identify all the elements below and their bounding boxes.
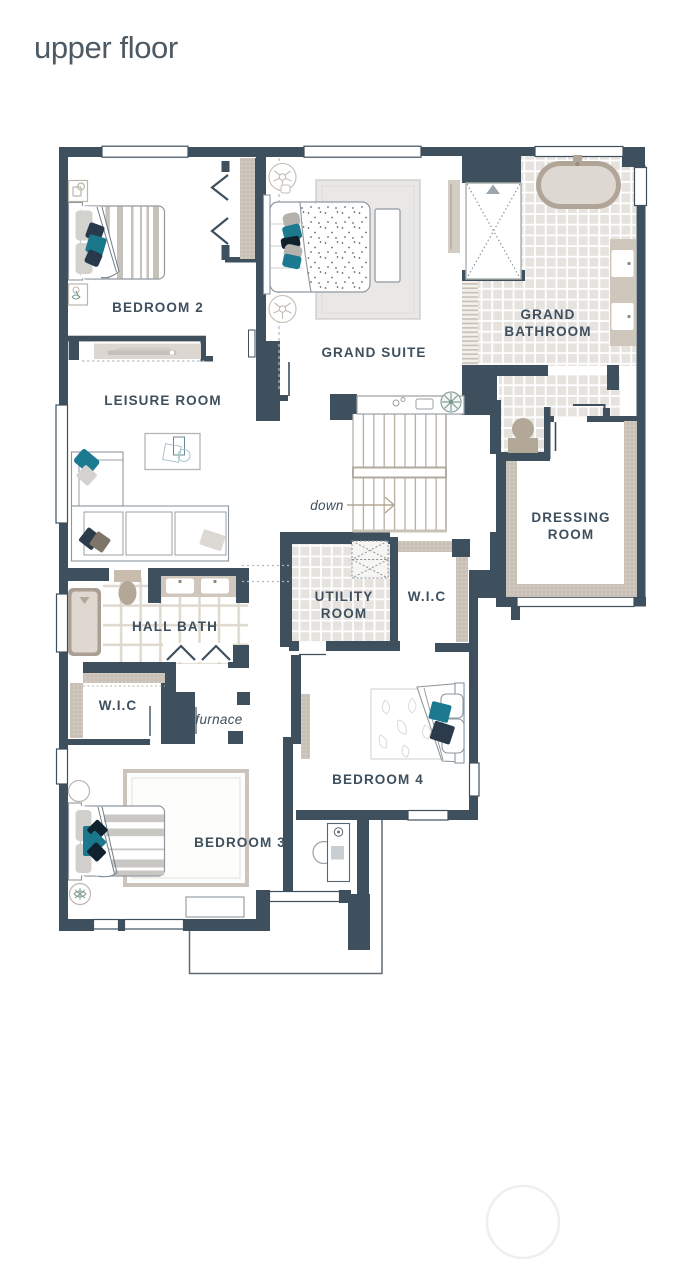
svg-text:GRAND SUITE: GRAND SUITE [321, 345, 426, 360]
svg-text:HALL BATH: HALL BATH [132, 619, 218, 634]
svg-text:LEISURE ROOM: LEISURE ROOM [104, 393, 221, 408]
svg-text:BATHROOM: BATHROOM [504, 324, 591, 339]
svg-text:furnace: furnace [195, 712, 242, 727]
svg-text:ROOM: ROOM [548, 527, 594, 542]
svg-text:BEDROOM 4: BEDROOM 4 [332, 772, 424, 787]
svg-text:down: down [310, 498, 343, 513]
svg-text:upper floor: upper floor [34, 30, 178, 65]
svg-text:BEDROOM 3: BEDROOM 3 [194, 835, 286, 850]
svg-text:ROOM: ROOM [321, 606, 367, 621]
svg-text:UTILITY: UTILITY [315, 589, 374, 604]
svg-text:GRAND: GRAND [521, 307, 576, 322]
svg-text:BEDROOM 2: BEDROOM 2 [112, 300, 204, 315]
svg-text:DRESSING: DRESSING [531, 510, 610, 525]
svg-text:W.I.C: W.I.C [408, 589, 447, 604]
svg-text:W.I.C: W.I.C [99, 698, 138, 713]
